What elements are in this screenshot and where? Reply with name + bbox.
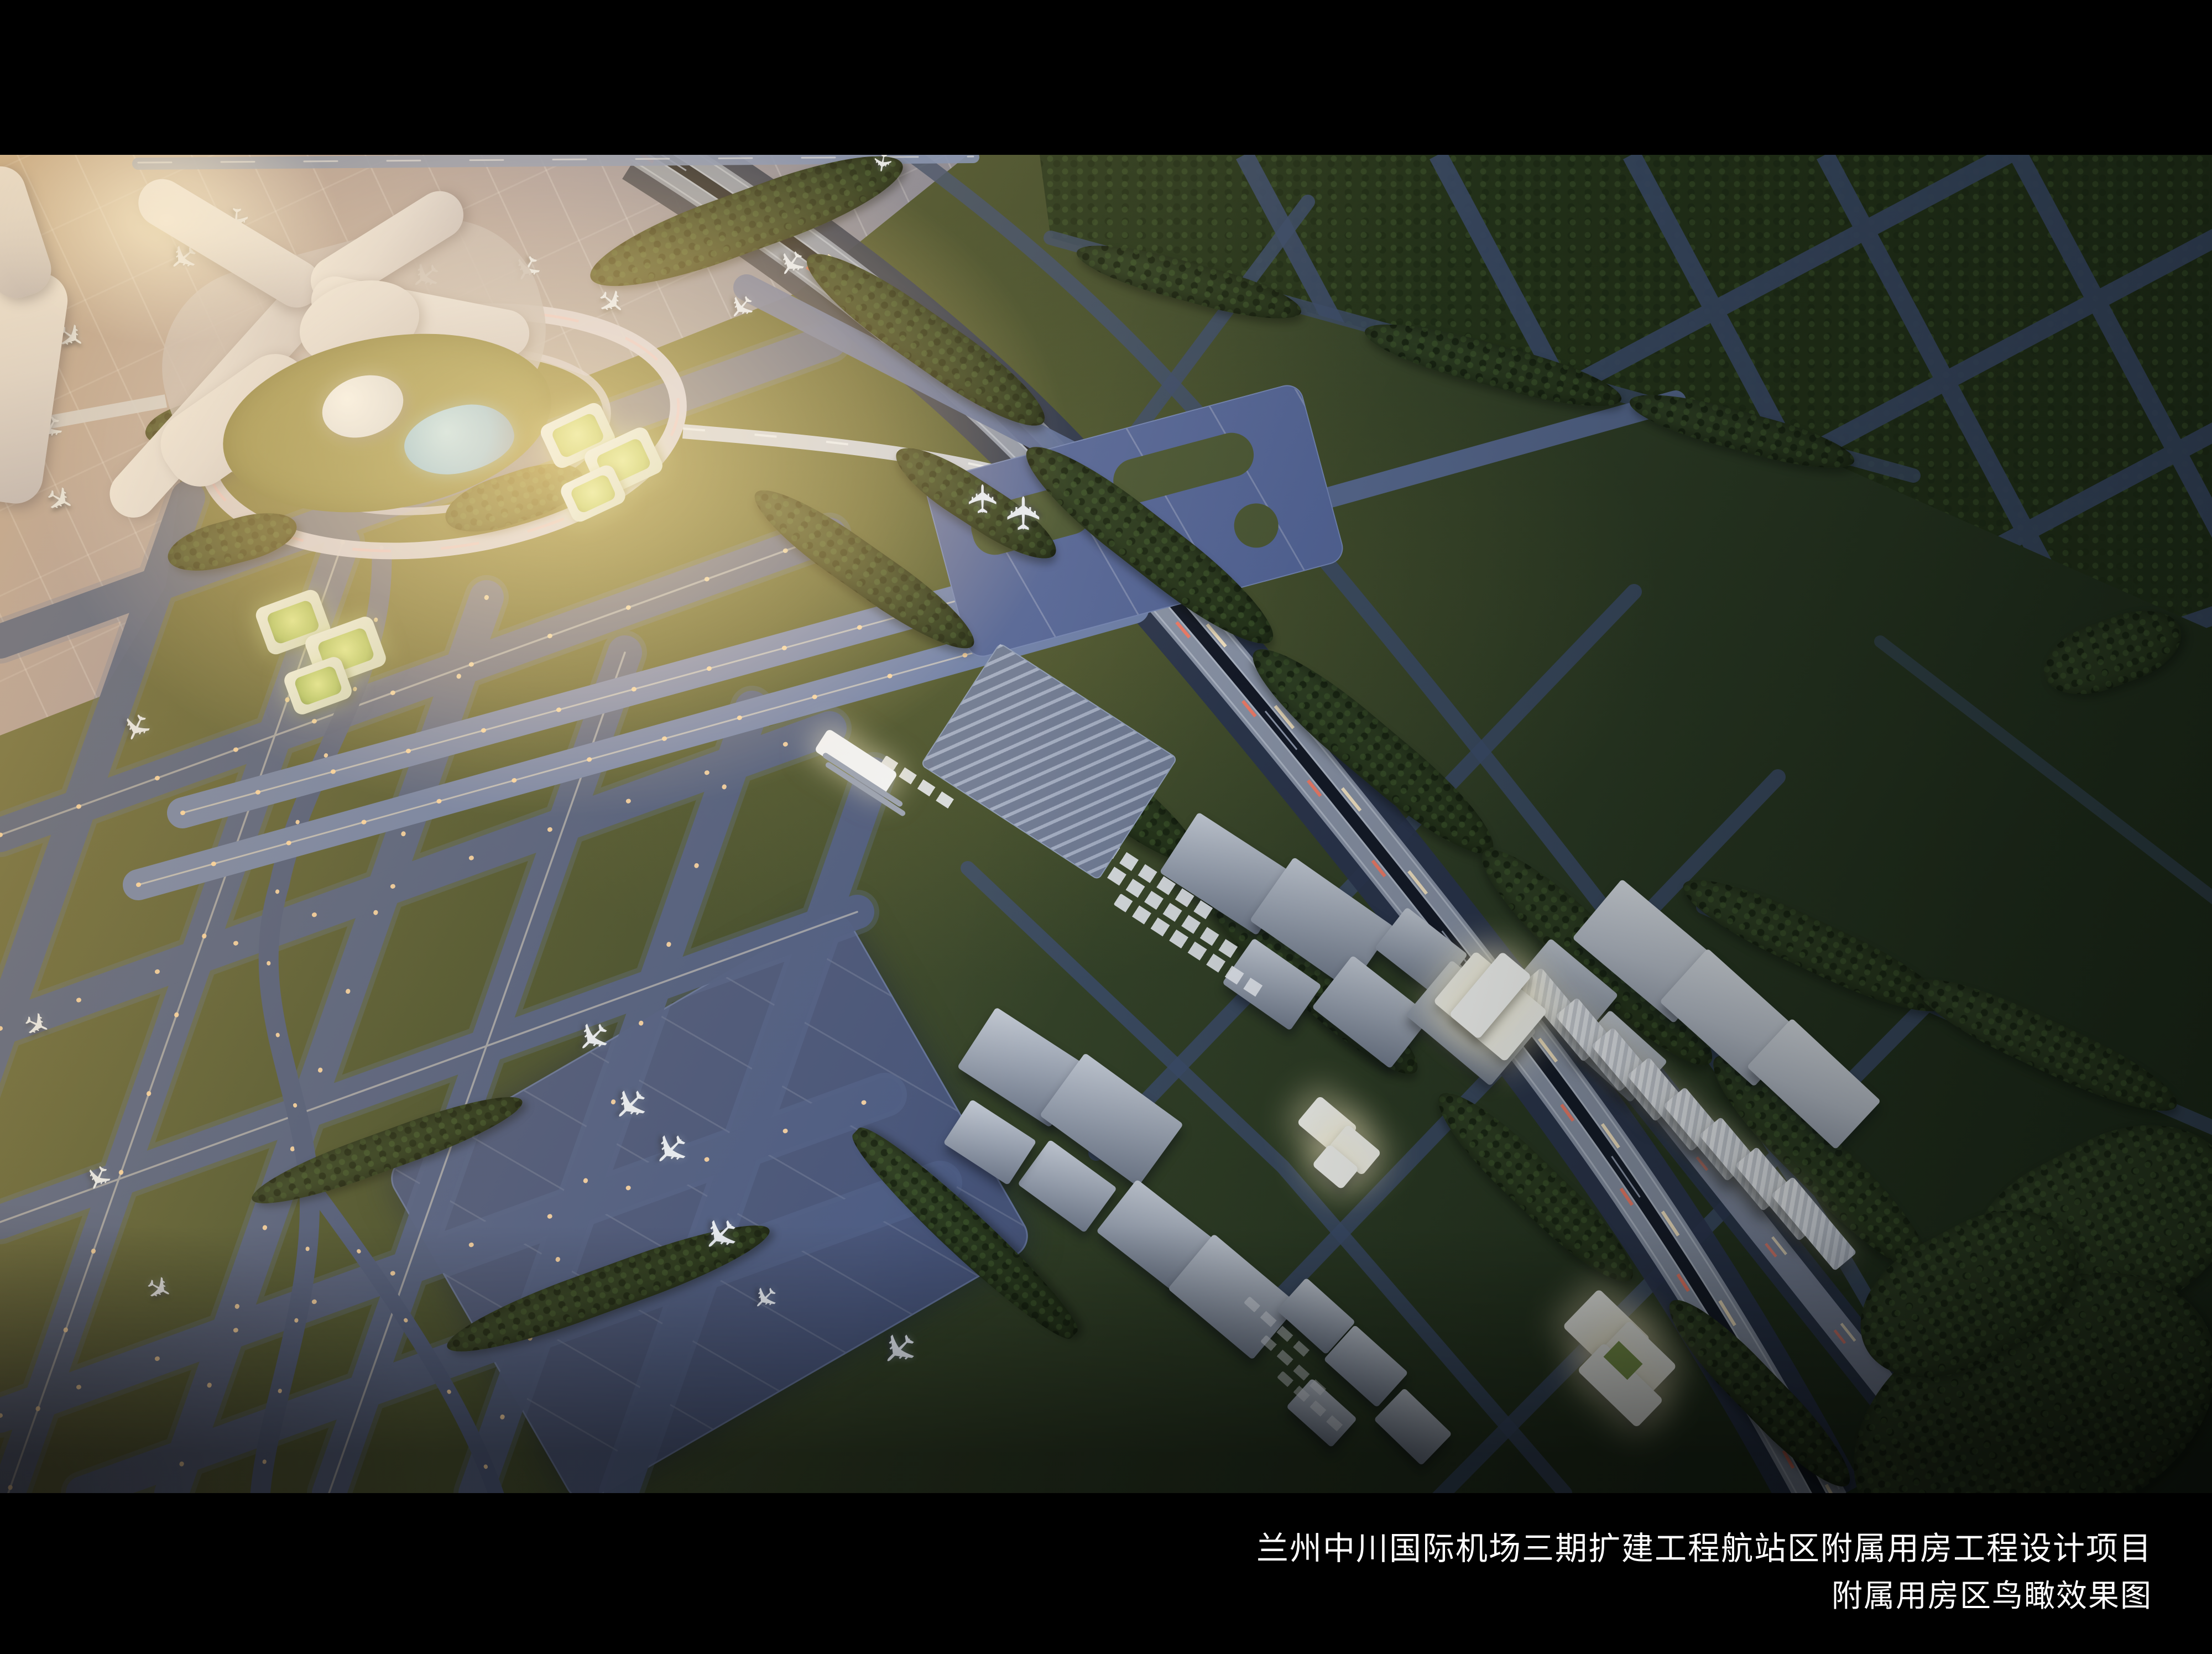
- warehouse-building: [1374, 1388, 1452, 1466]
- caption-line-1: 兰州中川国际机场三期扩建工程航站区附属用房工程设计项目: [1256, 1525, 2152, 1573]
- rendering-frame: ✈✈✈✈✈✈✈✈✈✈✈✈✈✈✈✈✈✈✈✈✈✈✈✈: [0, 0, 2212, 1654]
- scene-detail: [293, 665, 343, 706]
- forest-strip: [163, 503, 302, 580]
- forest-strip: [2033, 597, 2191, 708]
- forest-strip: [793, 236, 1058, 443]
- forest-strip: [1625, 383, 1859, 480]
- airplane-icon: ✈: [76, 1156, 119, 1199]
- warehouse-building: [943, 1099, 1036, 1185]
- forest-strip: [1237, 631, 1509, 873]
- scene-detail: [569, 473, 617, 514]
- forest-strip: [246, 1083, 529, 1218]
- aerial-rendering: ✈✈✈✈✈✈✈✈✈✈✈✈✈✈✈✈✈✈✈✈✈✈✈✈: [0, 155, 2212, 1493]
- airplane-icon: ✈: [599, 1074, 660, 1135]
- forest-strip: [1905, 962, 2187, 1128]
- airplane-icon: ✈: [742, 1275, 786, 1319]
- caption-line-2: 附属用房区鸟瞰效果图: [1256, 1573, 2152, 1619]
- airplane-icon: ✈: [16, 1005, 57, 1046]
- airplane-icon: ✈: [138, 1269, 180, 1311]
- airplane-icon: ✈: [564, 1008, 622, 1066]
- airplane-icon: ✈: [867, 1317, 929, 1380]
- airplane-icon: ✈: [588, 280, 635, 327]
- caption: 兰州中川国际机场三期扩建工程航站区附属用房工程设计项目 附属用房区鸟瞰效果图: [1256, 1525, 2152, 1619]
- airplane-icon: ✈: [639, 1119, 700, 1180]
- airplane-icon: ✈: [1001, 490, 1047, 536]
- airplane-icon: ✈: [767, 239, 815, 287]
- letterbox-top: [0, 0, 2212, 155]
- forest-strip: [1655, 1285, 1865, 1493]
- forest-strip: [1072, 233, 1306, 331]
- airplane-icon: ✈: [112, 703, 159, 750]
- caption-bar: 兰州中川国际机场三期扩建工程航站区附属用房工程设计项目 附属用房区鸟瞰效果图: [0, 1493, 2212, 1654]
- forest-strip: [1423, 1077, 1648, 1297]
- forest-strip: [1359, 311, 1626, 420]
- airplane-icon: ✈: [718, 284, 764, 330]
- airplane-icon: ✈: [37, 478, 82, 523]
